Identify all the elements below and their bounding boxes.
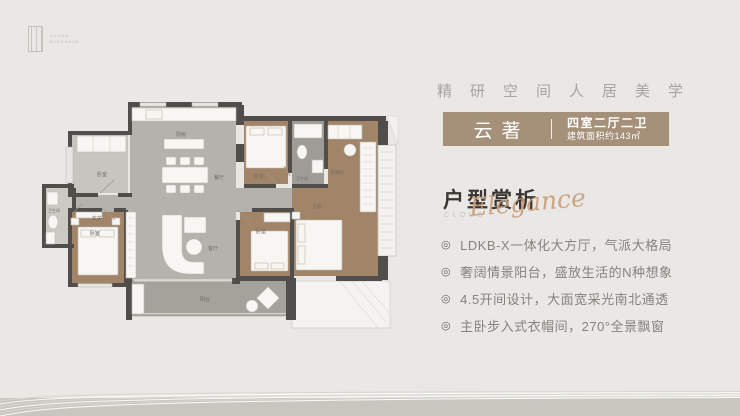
feature-item: ◎ 主卧步入式衣帽间，270°全景飘窗 [441, 319, 673, 334]
room-label-kitchen: 厨房 [176, 131, 186, 138]
built-area: 建筑面积约143㎡ [567, 131, 648, 142]
feature-text: 主卧步入式衣帽间，270°全景飘窗 [460, 319, 664, 334]
room-label-entry: 玄关 [92, 215, 102, 222]
room-label-bedroom-bm: 卧室 [256, 228, 266, 235]
room-label-dining: 餐厅 [214, 174, 224, 181]
feature-text: 4.5开间设计，大面宽采光南北通透 [460, 292, 669, 307]
bottom-decorative-band [0, 366, 740, 416]
feature-text: 奢阔情景阳台，盛放生活的N种想象 [460, 265, 672, 280]
room-label-balcony: 阳台 [200, 296, 210, 303]
feature-text: LDKB-X一体化大方厅，气派大格局 [460, 238, 672, 253]
bullet-icon: ◎ [441, 238, 451, 253]
bullet-icon: ◎ [441, 292, 451, 307]
brand-logo-text: CLOUD ELEGANCE [50, 33, 80, 45]
brand-logo-line2: ELEGANCE [50, 39, 80, 45]
feature-item: ◎ LDKB-X一体化大方厅，气派大格局 [441, 238, 673, 253]
room-label-master: 主卧 [312, 203, 322, 210]
layout-type: 四室二厅二卫 [567, 116, 648, 130]
project-name: 云著 [443, 116, 551, 143]
feature-list: ◎ LDKB-X一体化大方厅，气派大格局 ◎ 奢阔情景阳台，盛放生活的N种想象 … [441, 238, 673, 346]
room-label-bath-right: 卫生间 [296, 175, 308, 181]
room-label-bedroom-tl: 卧室 [97, 171, 107, 178]
bullet-icon: ◎ [441, 319, 451, 334]
feature-item: ◎ 4.5开间设计，大面宽采光南北通透 [441, 292, 673, 307]
feature-item: ◎ 奢阔情景阳台，盛放生活的N种想象 [441, 265, 673, 280]
room-label-cloakroom: 衣帽间 [330, 169, 344, 176]
tagline: 精研空间人居美学 [437, 80, 701, 101]
brand-logo: CLOUD ELEGANCE [28, 26, 80, 52]
brand-logo-icon [28, 26, 43, 52]
room-label-living: 客厅 [208, 245, 218, 252]
room-label-bedroom-tr: 卧室 [254, 173, 264, 180]
section-heading: 户型赏析 CLOUD Elegance [443, 184, 683, 236]
room-label-bath-left: 卫生间 [48, 207, 60, 213]
bullet-icon: ◎ [441, 265, 451, 280]
badge-specs: 四室二厅二卫 建筑面积约143㎡ [552, 116, 648, 142]
room-label-bedroom-bl: 卧室 [90, 230, 100, 237]
project-badge: 云著 四室二厅二卫 建筑面积约143㎡ [443, 112, 669, 146]
floor-plan: 厨房 餐厅 客厅 玄关 阳台 卧室 卧室 卧室 卧室 主卧 衣帽间 卫生间 卫生… [40, 100, 404, 336]
real-estate-poster: CLOUD ELEGANCE [0, 0, 740, 416]
